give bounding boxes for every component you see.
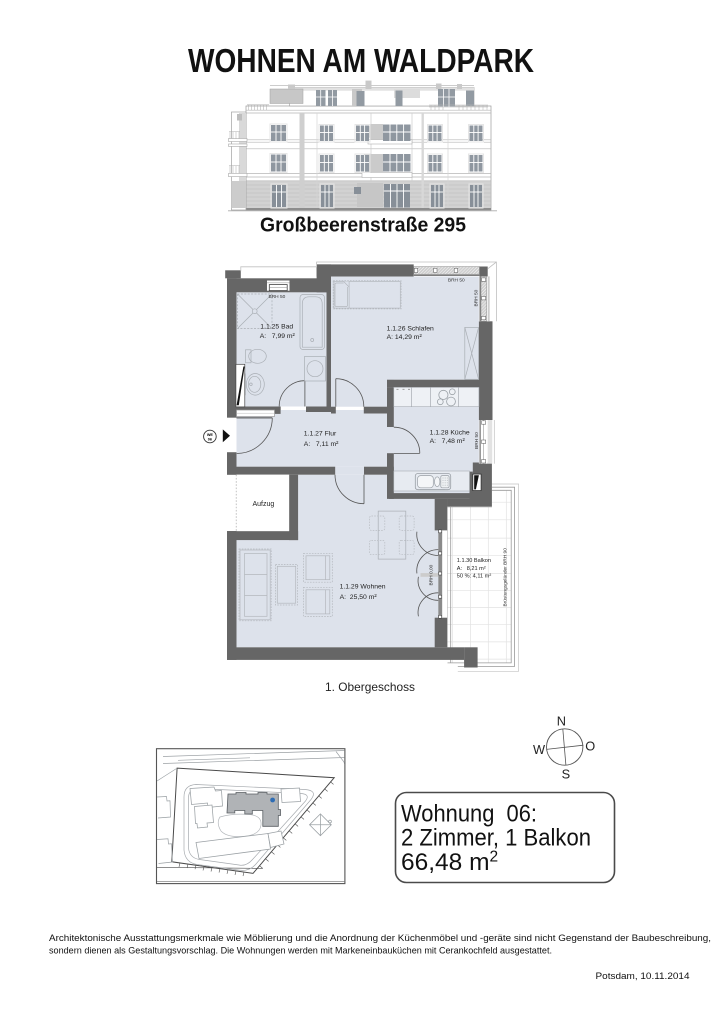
svg-text:A: 25,50 m²: A: 25,50 m² xyxy=(340,594,378,601)
svg-text:BRH 50: BRH 50 xyxy=(269,294,286,300)
svg-text:O: O xyxy=(585,738,595,753)
svg-text:BRH 50: BRH 50 xyxy=(474,432,480,449)
svg-text:1.1.28 Küche: 1.1.28 Küche xyxy=(430,430,470,437)
svg-text:BRH 50: BRH 50 xyxy=(448,278,465,284)
svg-text:W: W xyxy=(533,742,546,757)
svg-text:BRH 0,00: BRH 0,00 xyxy=(428,564,434,585)
svg-text:1.1.30 Balkon: 1.1.30 Balkon xyxy=(457,558,491,564)
svg-text:1.1.25 Bad: 1.1.25 Bad xyxy=(260,324,293,331)
svg-text:WOHNEN AM WALDPARK: WOHNEN AM WALDPARK xyxy=(188,42,534,79)
svg-text:Architektonische Ausstattungsm: Architektonische Ausstattungsmerkmale wi… xyxy=(49,933,711,943)
svg-text:A: 14,29 m²: A: 14,29 m² xyxy=(387,334,423,341)
svg-text:WE: WE xyxy=(207,433,214,437)
svg-text:sondern dienen als Gestaltungs: sondern dienen als Gestaltungsvorschlag.… xyxy=(49,946,552,956)
svg-text:Aufzug: Aufzug xyxy=(253,501,275,508)
svg-text:66,48 m2: 66,48 m2 xyxy=(401,849,498,877)
svg-text:1. Obergeschoss: 1. Obergeschoss xyxy=(325,680,415,694)
svg-text:Potsdam, 10.11.2014: Potsdam, 10.11.2014 xyxy=(596,971,690,981)
svg-text:1.1.27 Flur: 1.1.27 Flur xyxy=(304,431,337,438)
svg-text:N: N xyxy=(557,714,566,729)
svg-text:Großbeerenstraße 295: Großbeerenstraße 295 xyxy=(260,214,466,237)
svg-text:06: 06 xyxy=(208,437,212,441)
svg-text:1.1.29 Wohnen: 1.1.29 Wohnen xyxy=(340,584,386,591)
svg-text:A: 7,48 m²: A: 7,48 m² xyxy=(430,438,466,445)
svg-text:50 %: 4,11 m²: 50 %: 4,11 m² xyxy=(457,574,492,580)
svg-text:2 Zimmer, 1 Balkon: 2 Zimmer, 1 Balkon xyxy=(401,825,591,852)
svg-text:BRH 50: BRH 50 xyxy=(473,289,479,306)
svg-text:A: 7,11 m²: A: 7,11 m² xyxy=(304,441,339,448)
svg-text:1.1.26 Schlafen: 1.1.26 Schlafen xyxy=(387,326,434,333)
svg-text:A: 7,99 m²: A: 7,99 m² xyxy=(260,333,296,340)
svg-text:Brüstungsgeländer BRH 90: Brüstungsgeländer BRH 90 xyxy=(502,548,508,607)
svg-text:A: 8,21 m²: A: 8,21 m² xyxy=(457,566,486,572)
svg-text:S: S xyxy=(562,767,571,782)
svg-text:Wohnung 06:: Wohnung 06: xyxy=(401,801,537,828)
